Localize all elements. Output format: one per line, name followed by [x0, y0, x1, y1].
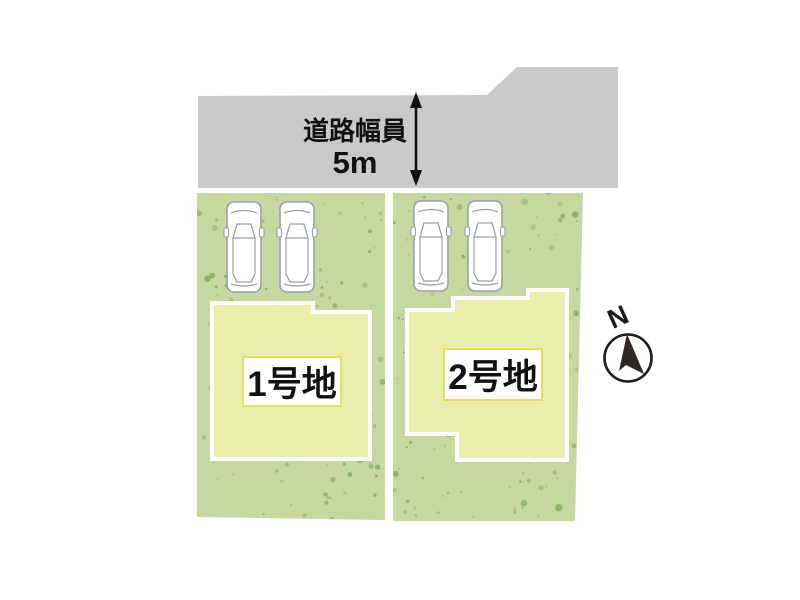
lot-2-label: 2号地 — [443, 348, 543, 401]
lot-2-name: 2号地 — [448, 349, 537, 400]
road-width-label: 道路幅員 5m — [291, 117, 419, 181]
compass-icon — [605, 334, 652, 382]
car-icon — [224, 202, 264, 292]
lot-1-label: 1号地 — [242, 356, 342, 407]
road-width-label-text: 道路幅員 — [291, 117, 419, 146]
car-icon — [277, 202, 317, 292]
car-icon — [411, 201, 451, 291]
site-plan: 道路幅員 5m 1号地 2号地 N — [0, 0, 800, 600]
car-icon — [465, 201, 505, 291]
road-width-value: 5m — [291, 146, 419, 181]
site-plan-canvas — [0, 0, 800, 600]
lot-1-name: 1号地 — [247, 356, 336, 407]
